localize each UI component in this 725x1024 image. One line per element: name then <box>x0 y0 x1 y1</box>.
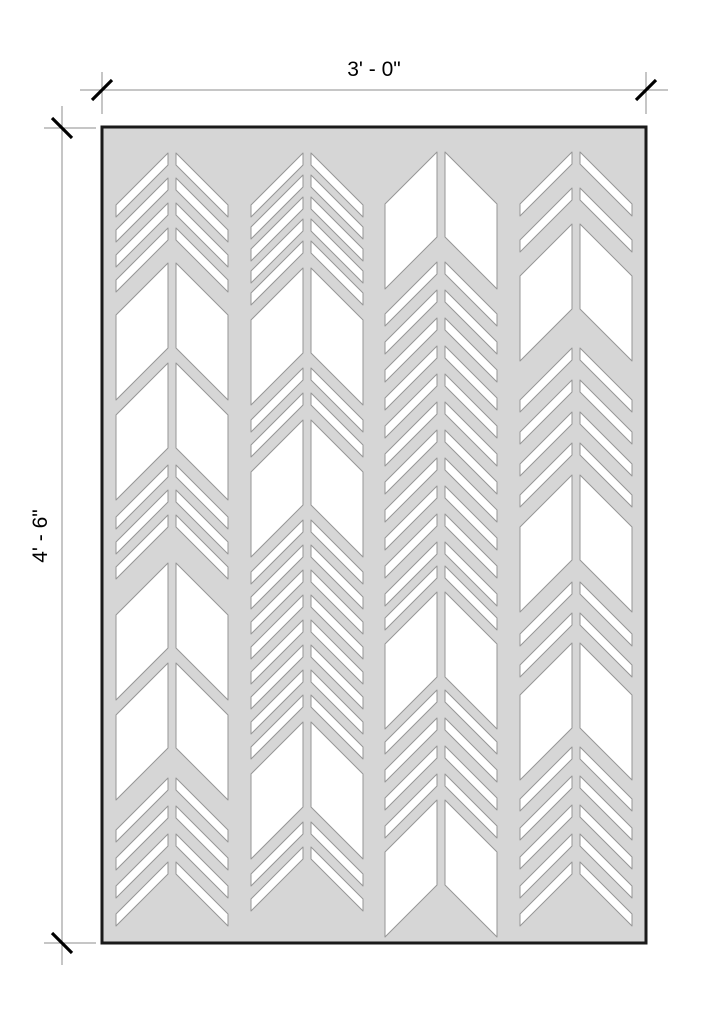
width-dimension-label: 3' - 0" <box>347 58 400 81</box>
drawing-sheet: 3' - 0" 4' - 6" <box>0 0 725 1024</box>
height-dimension-label: 4' - 6" <box>29 509 52 562</box>
top-dimension: 3' - 0" <box>80 58 668 114</box>
left-dimension: 4' - 6" <box>29 106 96 965</box>
panel-elevation-drawing: 3' - 0" 4' - 6" <box>0 0 725 1024</box>
